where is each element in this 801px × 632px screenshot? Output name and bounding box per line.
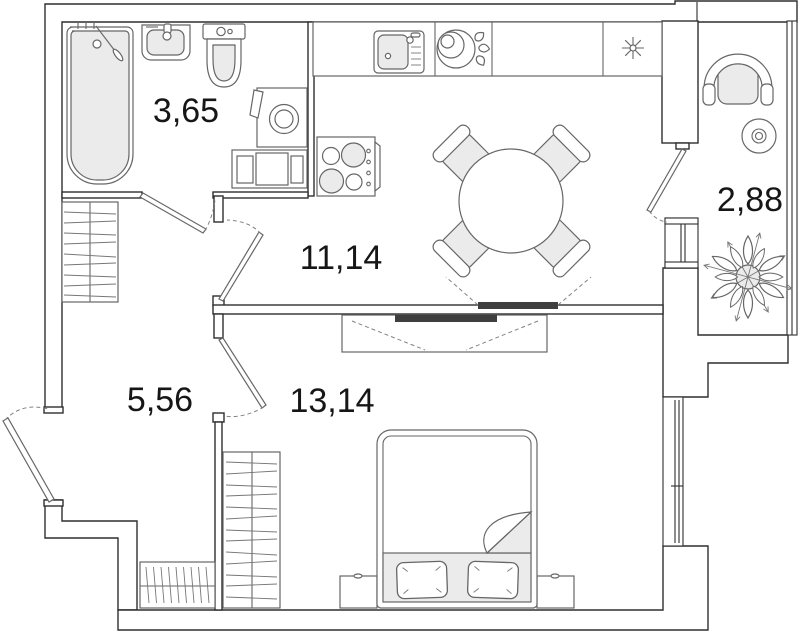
bathroom-cabinet [232,150,307,188]
pot-icon [437,30,490,68]
bedroom-window [663,397,683,546]
oven-handle [375,142,380,191]
entrance-door [3,407,54,502]
bathroom-sink [142,24,190,60]
shoe-cabinet [140,562,215,608]
dining-table [459,149,563,253]
kitchen-sink [374,31,424,73]
faucet-icon [407,37,413,43]
double-bed [377,430,537,608]
area-label-bedroom: 13,14 [289,382,374,420]
washing-machine [250,88,307,147]
floor-plan-canvas: 3,65 11,14 5,56 13,14 2,88 [0,0,801,632]
toilet [203,24,245,87]
balcony-armchair [703,59,773,105]
pillow [396,561,447,599]
plant [703,232,792,321]
entrance-jamb [44,407,63,413]
balcony-table [742,119,776,153]
nightstand [340,574,377,608]
kitchen-door [219,220,263,301]
hallway-wardrobe [62,202,118,302]
balcony-door [647,149,686,222]
floor-plan-page: 3,65 11,14 5,56 13,14 2,88 [0,0,801,632]
pillow [467,561,518,599]
bathtub [67,21,133,184]
bedroom-dresser-tv [342,315,547,352]
area-label-kitchen: 11,14 [300,239,383,277]
area-label-bathroom: 3,65 [153,92,219,130]
bathroom-door [140,193,215,233]
bedroom-door [219,338,266,417]
stove [317,137,380,196]
area-label-balcony: 2,88 [717,181,783,219]
entrance-jamb [44,500,63,506]
asterisk-symbol [622,37,644,59]
kitchen-tv [446,277,591,309]
area-label-hallway: 5,56 [127,381,193,419]
balcony-door-window [665,218,698,268]
bedroom-wardrobe [223,452,280,608]
nightstand [537,574,574,608]
